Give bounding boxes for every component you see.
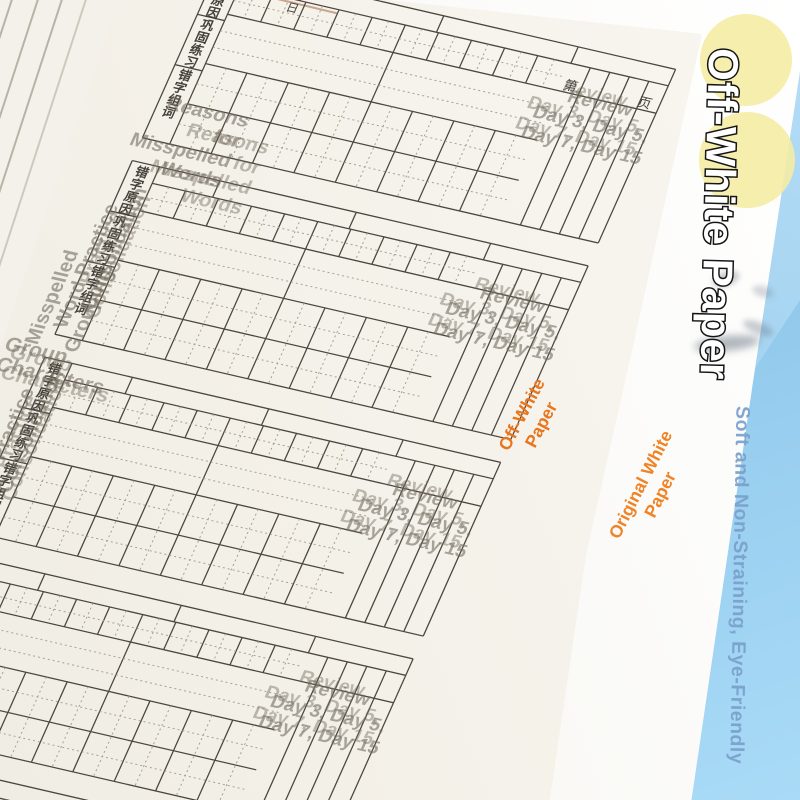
product-photo-stage: 错字原因巩固练习错字组词日第页ReviewDay 3, Day 5,Day 7,… xyxy=(0,0,800,800)
form-section: 错字原因巩固练习错字组词ReviewDay 3, Day 5,Day 7, Da… xyxy=(0,554,419,800)
date-label: 日 xyxy=(284,0,301,15)
page-label-suffix: 页 xyxy=(635,95,654,112)
section-header-cn: 巩固练习 xyxy=(182,17,217,71)
